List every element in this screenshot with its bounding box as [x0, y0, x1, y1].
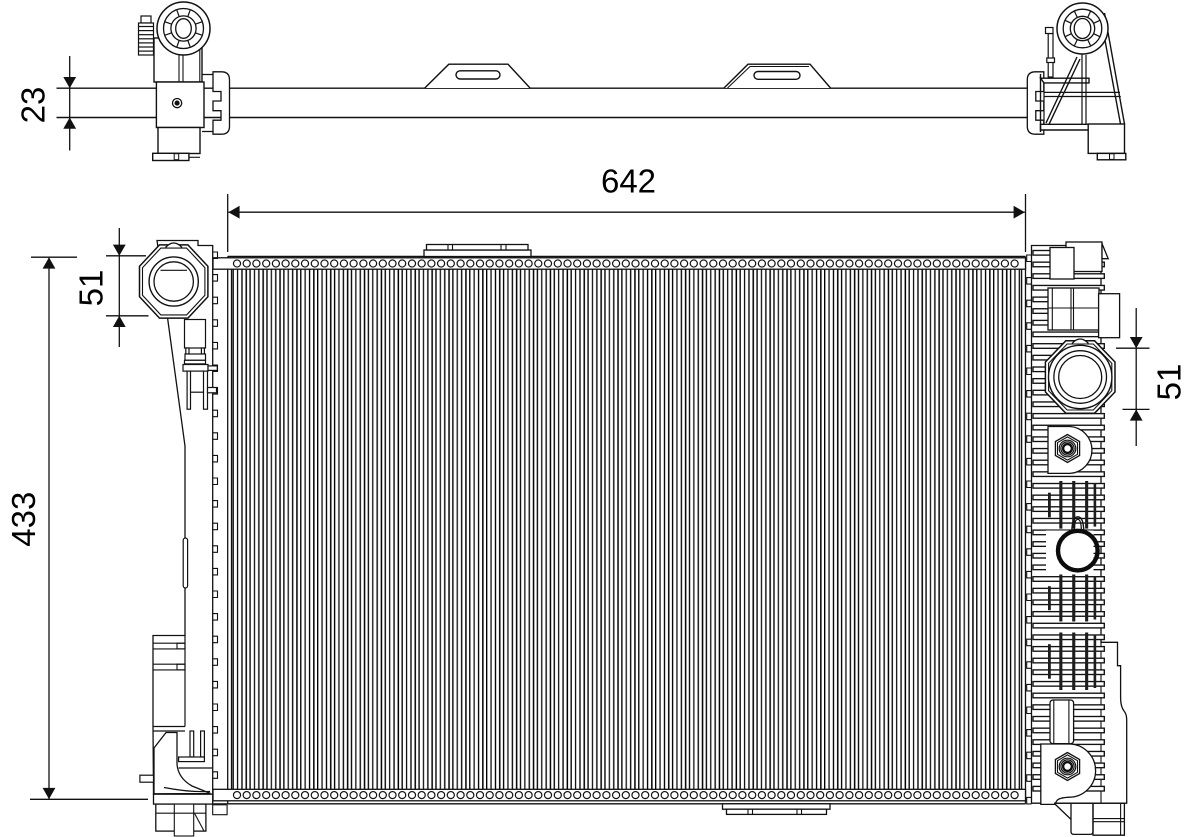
- svg-text:23: 23: [15, 87, 52, 124]
- svg-text:642: 642: [601, 163, 656, 200]
- svg-text:51: 51: [1151, 364, 1188, 401]
- svg-text:433: 433: [5, 492, 42, 547]
- svg-text:51: 51: [73, 270, 110, 307]
